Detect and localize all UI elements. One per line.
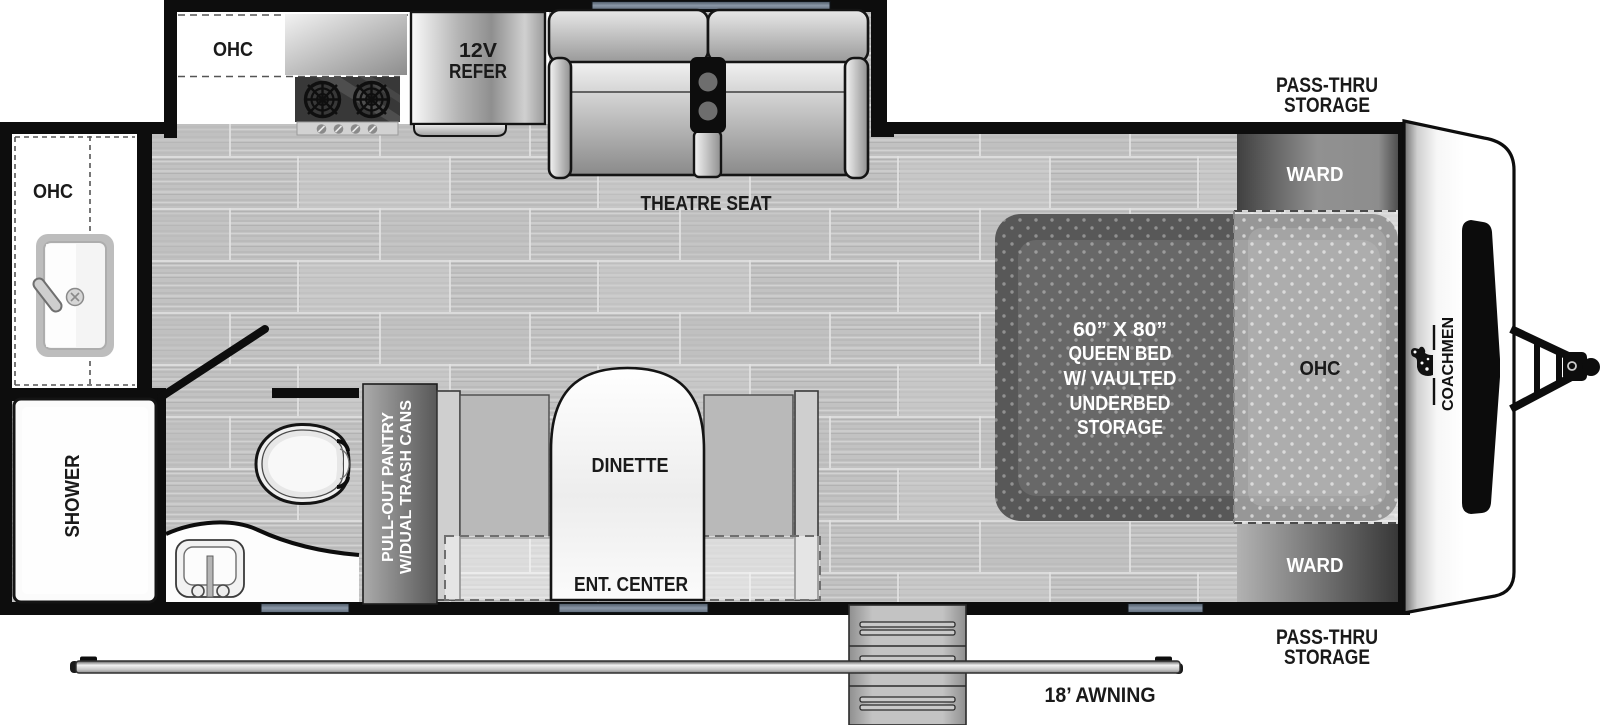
svg-text:REFER: REFER <box>449 61 507 83</box>
svg-text:60” X 80”: 60” X 80” <box>1073 318 1167 341</box>
svg-text:12V: 12V <box>459 40 498 62</box>
svg-text:18’ AWNING: 18’ AWNING <box>1045 684 1156 707</box>
svg-text:PULL-OUT PANTRY: PULL-OUT PANTRY <box>380 412 397 562</box>
svg-text:ENT. CENTER: ENT. CENTER <box>574 574 688 596</box>
svg-text:THEATRE SEAT: THEATRE SEAT <box>641 193 772 215</box>
svg-text:OHC: OHC <box>213 39 253 61</box>
svg-text:OHC: OHC <box>1300 358 1341 380</box>
svg-text:UNDERBED: UNDERBED <box>1070 392 1171 415</box>
svg-text:STORAGE: STORAGE <box>1284 94 1370 117</box>
svg-text:SHOWER: SHOWER <box>62 454 84 538</box>
svg-text:DINETTE: DINETTE <box>592 455 669 477</box>
svg-text:WARD: WARD <box>1287 555 1344 577</box>
svg-text:STORAGE: STORAGE <box>1077 416 1163 439</box>
svg-text:W/ VAULTED: W/ VAULTED <box>1064 367 1177 390</box>
svg-text:STORAGE: STORAGE <box>1284 646 1370 669</box>
svg-text:W/DUAL TRASH CANS: W/DUAL TRASH CANS <box>398 400 415 574</box>
svg-text:OHC: OHC <box>33 181 73 203</box>
svg-text:COACHMEN: COACHMEN <box>1440 317 1457 411</box>
svg-text:QUEEN BED: QUEEN BED <box>1069 342 1172 365</box>
svg-text:WARD: WARD <box>1287 164 1344 186</box>
